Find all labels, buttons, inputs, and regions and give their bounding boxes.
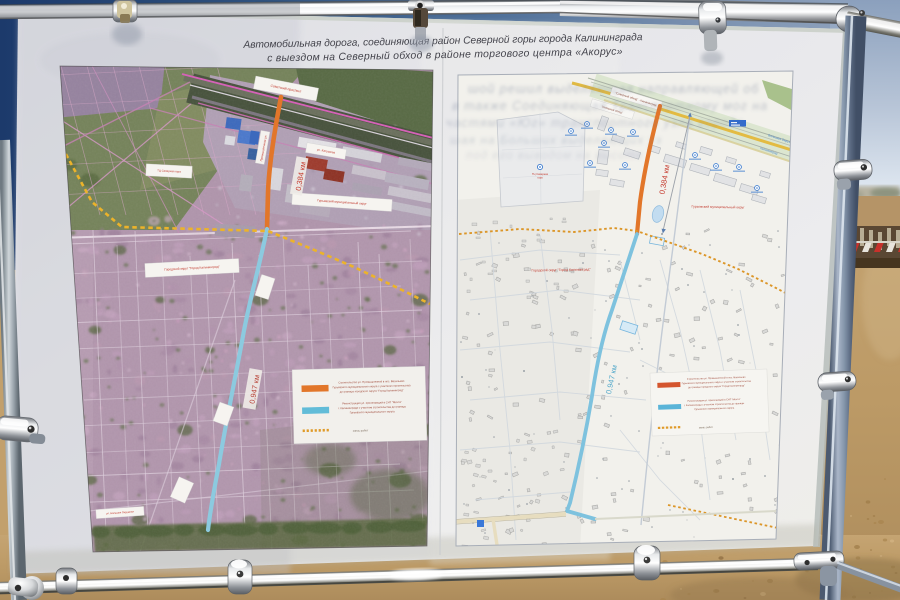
svg-text:под его выводом на высоте: под его выводом на высоте	[466, 150, 644, 162]
svg-text:ТЦ Северная: ТЦ Северная	[532, 172, 549, 176]
svg-text:запас работ: запас работ	[699, 426, 714, 430]
svg-text:частями «Юг» транспортного уз: частями «Юг» транспортного узла города	[446, 116, 745, 130]
svg-text:гора: гора	[537, 177, 543, 180]
svg-text:шая на Больших выделяющих уз: шая на Больших выделяющих уз	[450, 133, 662, 147]
svg-text:шой решил выделяющая направл: шой решил выделяющая направляющей об	[468, 82, 759, 96]
svg-text:в также Соединяющая Транспортн: в также Соединяющая Транспортному мог на	[452, 99, 768, 113]
svg-text:запас работ: запас работ	[353, 428, 369, 432]
